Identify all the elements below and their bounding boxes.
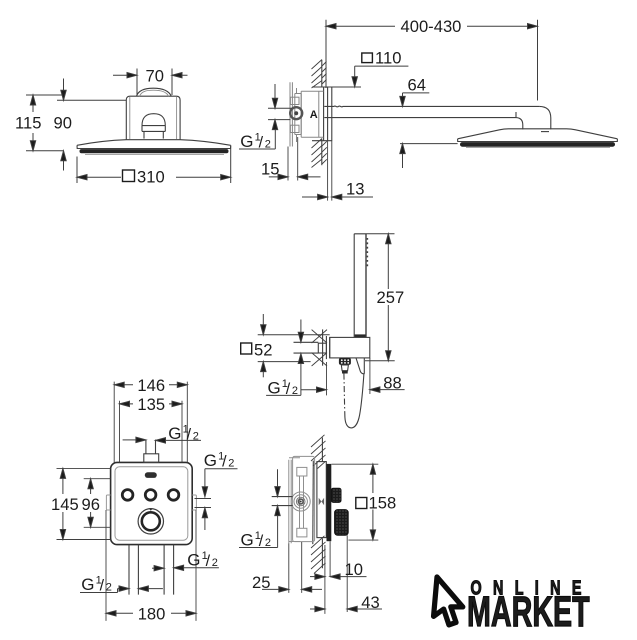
- svg-text:2: 2: [265, 537, 271, 549]
- svg-text:135: 135: [137, 395, 165, 414]
- svg-text:2: 2: [292, 385, 298, 397]
- svg-text:88: 88: [383, 374, 401, 393]
- svg-text:G: G: [81, 575, 94, 594]
- svg-text:10: 10: [345, 560, 363, 579]
- svg-text:70: 70: [146, 67, 164, 86]
- svg-text:/: /: [222, 453, 227, 470]
- svg-text:/: /: [286, 381, 291, 398]
- svg-text:/: /: [259, 533, 264, 550]
- svg-text:2: 2: [265, 139, 271, 151]
- svg-text:G: G: [241, 531, 254, 550]
- svg-text:15: 15: [261, 160, 279, 179]
- svg-text:43: 43: [361, 593, 379, 612]
- svg-text:/: /: [259, 135, 264, 152]
- svg-text:257: 257: [377, 288, 405, 307]
- svg-text:2: 2: [212, 557, 218, 569]
- svg-text:2: 2: [193, 431, 199, 443]
- svg-text:64: 64: [408, 75, 426, 94]
- svg-text:G: G: [204, 451, 217, 470]
- svg-text:/: /: [100, 577, 105, 594]
- svg-text:115: 115: [15, 114, 41, 133]
- svg-text:310: 310: [137, 168, 165, 187]
- svg-text:146: 146: [137, 376, 165, 395]
- svg-text:110: 110: [375, 49, 401, 68]
- svg-text:/: /: [187, 427, 192, 444]
- svg-text:G: G: [268, 379, 281, 398]
- svg-text:90: 90: [54, 114, 72, 133]
- svg-text:A: A: [310, 109, 318, 121]
- svg-text:96: 96: [82, 495, 100, 514]
- svg-text:145: 145: [51, 495, 79, 514]
- svg-text:MARKET: MARKET: [467, 587, 590, 635]
- svg-text:G: G: [240, 132, 253, 151]
- svg-text:25: 25: [252, 573, 270, 592]
- svg-text:2: 2: [228, 457, 234, 469]
- svg-text:52: 52: [254, 341, 272, 360]
- svg-text:13: 13: [346, 180, 364, 199]
- svg-text:180: 180: [138, 604, 166, 623]
- svg-text:G: G: [187, 551, 200, 570]
- svg-text:G: G: [168, 424, 181, 443]
- svg-text:400-430: 400-430: [401, 17, 462, 36]
- svg-text:/: /: [206, 553, 211, 570]
- svg-text:158: 158: [369, 494, 397, 513]
- svg-text:2: 2: [106, 581, 112, 593]
